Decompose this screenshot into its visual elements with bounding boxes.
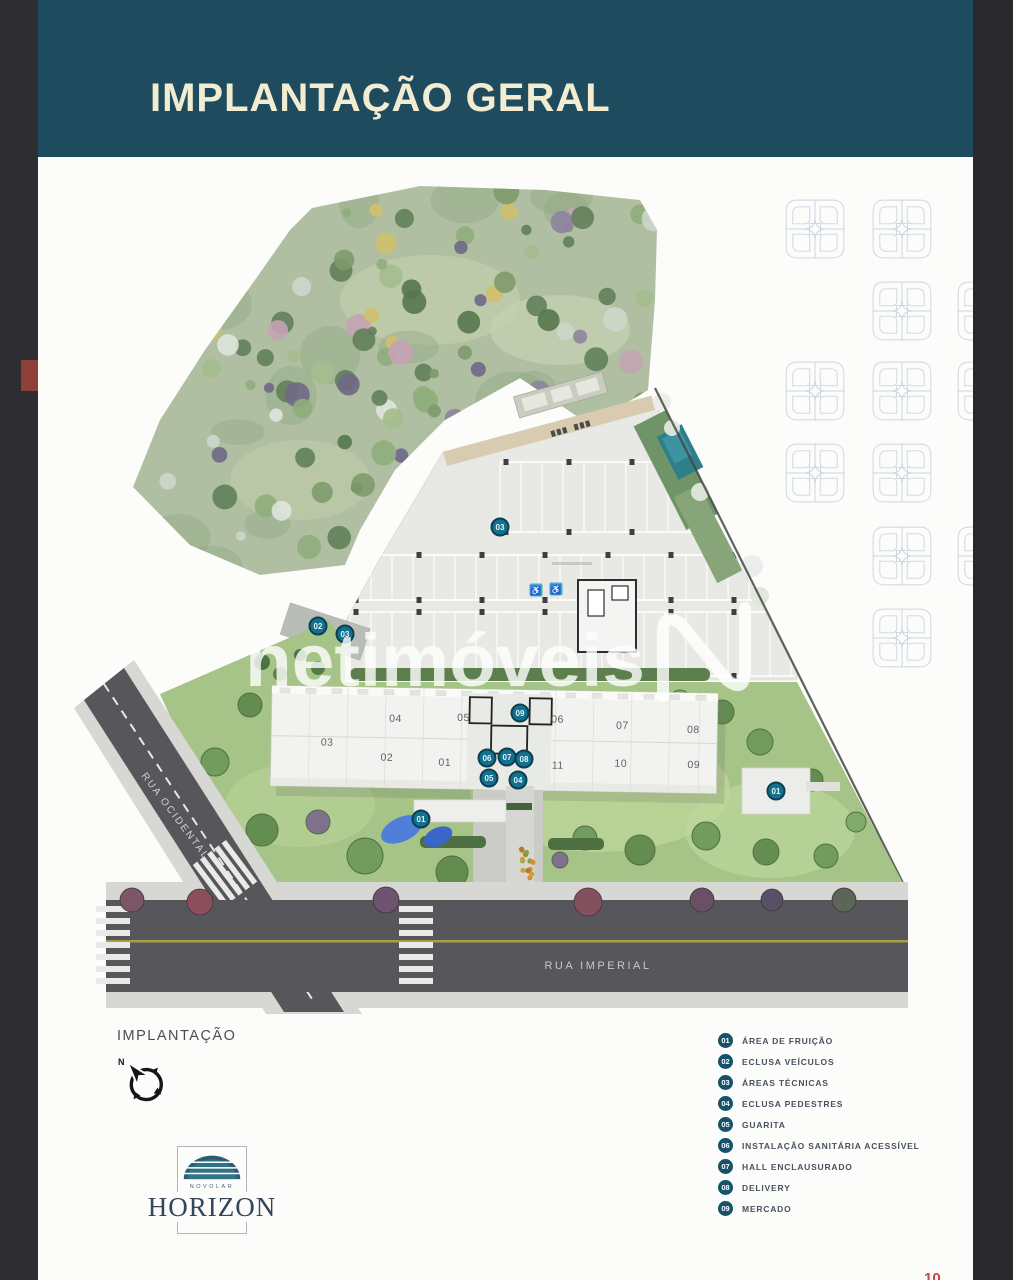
forest-tree <box>445 409 465 429</box>
plan-marker: 01 <box>413 811 430 828</box>
forest-tree <box>538 309 560 331</box>
tower-number: 07 <box>616 720 629 732</box>
forest-tree <box>272 501 292 521</box>
plan-marker: 08 <box>516 751 533 768</box>
forest-tree <box>295 448 315 468</box>
forest-tree <box>236 531 246 541</box>
tree <box>747 729 773 755</box>
legend-item: 08DELIVERY <box>718 1180 968 1195</box>
adjacent-page-fragment <box>21 360 38 391</box>
forest-tree <box>170 215 185 230</box>
legend-item: 01ÁREA DE FRUIÇÃO <box>718 1033 968 1048</box>
forest-tree <box>217 275 229 287</box>
tree <box>306 810 330 834</box>
forest-tree <box>163 337 188 362</box>
forest-tree <box>311 361 334 384</box>
forest-tree <box>372 390 388 406</box>
legend-item: 02ECLUSA VEÍCULOS <box>718 1054 968 1069</box>
forest-tree <box>239 184 256 201</box>
svg-text:05: 05 <box>485 774 494 783</box>
forest-tree <box>171 218 197 244</box>
forest-tree <box>584 347 608 371</box>
forest-tree <box>179 296 204 321</box>
residential-building: 0405060708030201111009 <box>270 686 726 804</box>
legend-item: 03ÁREAS TÉCNICAS <box>718 1075 968 1090</box>
forest-tree <box>557 323 574 340</box>
tree <box>814 844 838 868</box>
logo-brand: NOVOLAR <box>177 1184 247 1190</box>
legend-number-badge: 03 <box>718 1075 733 1090</box>
accessible-parking-icon: ♿ <box>530 584 543 597</box>
forest-tree <box>598 288 615 305</box>
forest-tree <box>157 535 171 549</box>
tower-number: 11 <box>552 760 564 772</box>
forest-tree <box>208 222 222 236</box>
forest-tree <box>202 359 221 378</box>
forest-tree <box>471 362 486 377</box>
svg-text:♿: ♿ <box>530 585 541 596</box>
forest-tree <box>337 435 352 450</box>
street-tree <box>574 888 602 916</box>
accessible-parking-icon: ♿ <box>550 583 563 596</box>
tower-number: 10 <box>614 758 627 770</box>
street-tree <box>373 887 399 913</box>
forest-tree <box>255 206 271 222</box>
forest-tree <box>457 311 480 334</box>
svg-text:01: 01 <box>772 787 781 796</box>
site-plan-illustration: 0405060708030201111009 <box>38 157 973 1030</box>
screenshot-root: IMPLANTAÇÃO GERAL <box>0 0 1013 1280</box>
logo-name: HORIZON <box>102 1192 322 1223</box>
novolar-horizon-logo: NOVOLAR HORIZON <box>102 1142 322 1244</box>
forest-tree <box>337 373 359 395</box>
street-tree <box>690 888 714 912</box>
legend-label: ECLUSA VEÍCULOS <box>742 1057 834 1067</box>
tree <box>692 822 720 850</box>
forest-tree <box>342 208 351 217</box>
tower-number: 03 <box>321 737 334 749</box>
legend-item: 09MERCADO <box>718 1201 968 1216</box>
forest-tree <box>168 283 178 293</box>
svg-text:09: 09 <box>516 709 525 718</box>
viewer-right-gutter <box>973 0 1013 1280</box>
forest-tree <box>199 319 221 341</box>
viewer-left-gutter <box>0 0 38 1280</box>
forest-tree <box>395 209 414 228</box>
tree <box>753 839 779 865</box>
legend-number-badge: 01 <box>718 1033 733 1048</box>
forest-tree <box>132 251 141 260</box>
legend-label: ECLUSA PEDESTRES <box>742 1099 843 1109</box>
legend-number-badge: 09 <box>718 1201 733 1216</box>
forest-tree <box>429 369 439 379</box>
forest-tree <box>292 277 311 296</box>
forest-tree <box>334 250 355 271</box>
forest-tree <box>402 279 422 299</box>
forest-tree <box>364 308 379 323</box>
plan-marker: 03 <box>492 519 509 536</box>
tree <box>846 812 866 832</box>
street-label-rua-imperial: RUA IMPERIAL <box>544 960 651 972</box>
plan-marker: 05 <box>481 770 498 787</box>
forest-tree <box>268 320 288 340</box>
legend-item: 05GUARITA <box>718 1117 968 1132</box>
forest-tree <box>139 190 164 215</box>
forest-tree <box>312 482 333 503</box>
forest-tree <box>521 225 531 235</box>
forest-tree <box>159 473 176 490</box>
plan-marker: 04 <box>510 772 527 789</box>
tower-number: 08 <box>687 724 700 736</box>
forest-tree <box>494 272 516 294</box>
forest-tree <box>215 196 236 217</box>
north-compass-icon: N <box>116 1052 174 1114</box>
forest-tree <box>257 349 274 366</box>
forest-tree <box>368 327 377 336</box>
legend-number-badge: 08 <box>718 1180 733 1195</box>
forest-tree <box>428 404 441 417</box>
plan-marker: 01 <box>768 783 785 800</box>
forest-tree <box>327 526 351 550</box>
forest-tree <box>563 236 574 247</box>
tower-number: 01 <box>438 757 451 769</box>
implantacao-label: IMPLANTAÇÃO <box>117 1028 236 1044</box>
page-number: 10 <box>924 1270 941 1280</box>
forest-tree <box>371 440 396 465</box>
legend-item: 06INSTALAÇÃO SANITÁRIA ACESSÍVEL <box>718 1138 968 1153</box>
legend-label: INSTALAÇÃO SANITÁRIA ACESSÍVEL <box>742 1141 920 1151</box>
forest-tree <box>212 485 237 510</box>
forest-tree <box>259 205 280 226</box>
legend-number-badge: 02 <box>718 1054 733 1069</box>
forest-tree <box>376 259 387 270</box>
forest-tree <box>383 408 403 428</box>
forest-tree <box>217 334 239 356</box>
forest-tree <box>642 206 667 231</box>
header-band: IMPLANTAÇÃO GERAL <box>38 0 973 157</box>
forest-tree <box>413 386 433 406</box>
tower-number: 09 <box>687 759 700 771</box>
forest-tree <box>370 204 383 217</box>
legend-label: DELIVERY <box>742 1183 791 1193</box>
legend-number-badge: 04 <box>718 1096 733 1111</box>
forest-tree <box>375 233 396 254</box>
forest-tree <box>524 245 539 260</box>
forest-tree <box>573 330 587 344</box>
svg-text:08: 08 <box>520 755 529 764</box>
watermark-text: netimóveis <box>245 619 645 702</box>
legend-label: MERCADO <box>742 1204 792 1214</box>
street-tree <box>761 889 783 911</box>
forest-tree <box>288 350 300 362</box>
svg-text:03: 03 <box>496 523 505 532</box>
tower-number: 06 <box>551 714 564 726</box>
tree <box>625 835 655 865</box>
legend-label: HALL ENCLAUSURADO <box>742 1162 853 1172</box>
page-title: IMPLANTAÇÃO GERAL <box>150 76 611 121</box>
legend-number-badge: 06 <box>718 1138 733 1153</box>
forest-tree <box>494 179 520 205</box>
forest-tree <box>458 346 472 360</box>
street-tree <box>832 888 856 912</box>
forest-tree <box>264 383 274 393</box>
forest-tree <box>144 249 165 270</box>
legend-number-badge: 05 <box>718 1117 733 1132</box>
plan-marker: 09 <box>512 705 529 722</box>
forest-tree <box>293 399 313 419</box>
tower-number: 04 <box>389 713 402 725</box>
forest-tree <box>635 289 653 307</box>
legend-number-badge: 07 <box>718 1159 733 1174</box>
forest-tree <box>603 307 627 331</box>
tree <box>552 852 568 868</box>
horizon-sunrise-icon <box>178 1150 246 1182</box>
forest-tree <box>351 473 375 497</box>
forest-tree <box>563 222 573 232</box>
tower-number: 05 <box>457 712 470 724</box>
legend-label: GUARITA <box>742 1120 786 1130</box>
svg-text:04: 04 <box>514 776 523 785</box>
legend-item: 04ECLUSA PEDESTRES <box>718 1096 968 1111</box>
forest-tree <box>142 251 161 270</box>
forest-tree <box>269 408 282 421</box>
forest-tree <box>415 448 429 462</box>
forest-tree <box>619 350 643 374</box>
plan-marker: 07 <box>499 749 516 766</box>
forest-tree <box>454 241 467 254</box>
street-tree <box>187 889 213 915</box>
forest-tree <box>571 206 594 229</box>
forest-tree <box>203 276 224 297</box>
svg-text:06: 06 <box>483 754 492 763</box>
forest-tree <box>501 204 518 221</box>
forest-tree <box>310 187 320 197</box>
forest-tree <box>408 464 423 479</box>
brochure-page: IMPLANTAÇÃO GERAL <box>38 0 973 1280</box>
svg-text:♿: ♿ <box>550 584 561 595</box>
forest-tree <box>388 340 413 365</box>
forest-tree <box>246 380 256 390</box>
compass-north-letter: N <box>118 1057 125 1067</box>
legend-label: ÁREAS TÉCNICAS <box>742 1078 829 1088</box>
legend-item: 07HALL ENCLAUSURADO <box>718 1159 968 1174</box>
tree <box>246 814 278 846</box>
street-tree <box>120 888 144 912</box>
forest-tree <box>297 535 321 559</box>
forest-tree <box>212 447 228 463</box>
forest-tree <box>394 448 408 462</box>
svg-text:07: 07 <box>503 753 512 762</box>
forest-tree <box>170 264 186 280</box>
forest-tree <box>207 435 220 448</box>
forest-tree <box>474 294 486 306</box>
tower-number: 02 <box>380 752 393 764</box>
legend: 01ÁREA DE FRUIÇÃO02ECLUSA VEÍCULOS03ÁREA… <box>718 1033 968 1222</box>
legend-label: ÁREA DE FRUIÇÃO <box>742 1036 833 1046</box>
tree <box>347 838 383 874</box>
plan-marker: 06 <box>479 750 496 767</box>
svg-text:01: 01 <box>417 815 426 824</box>
